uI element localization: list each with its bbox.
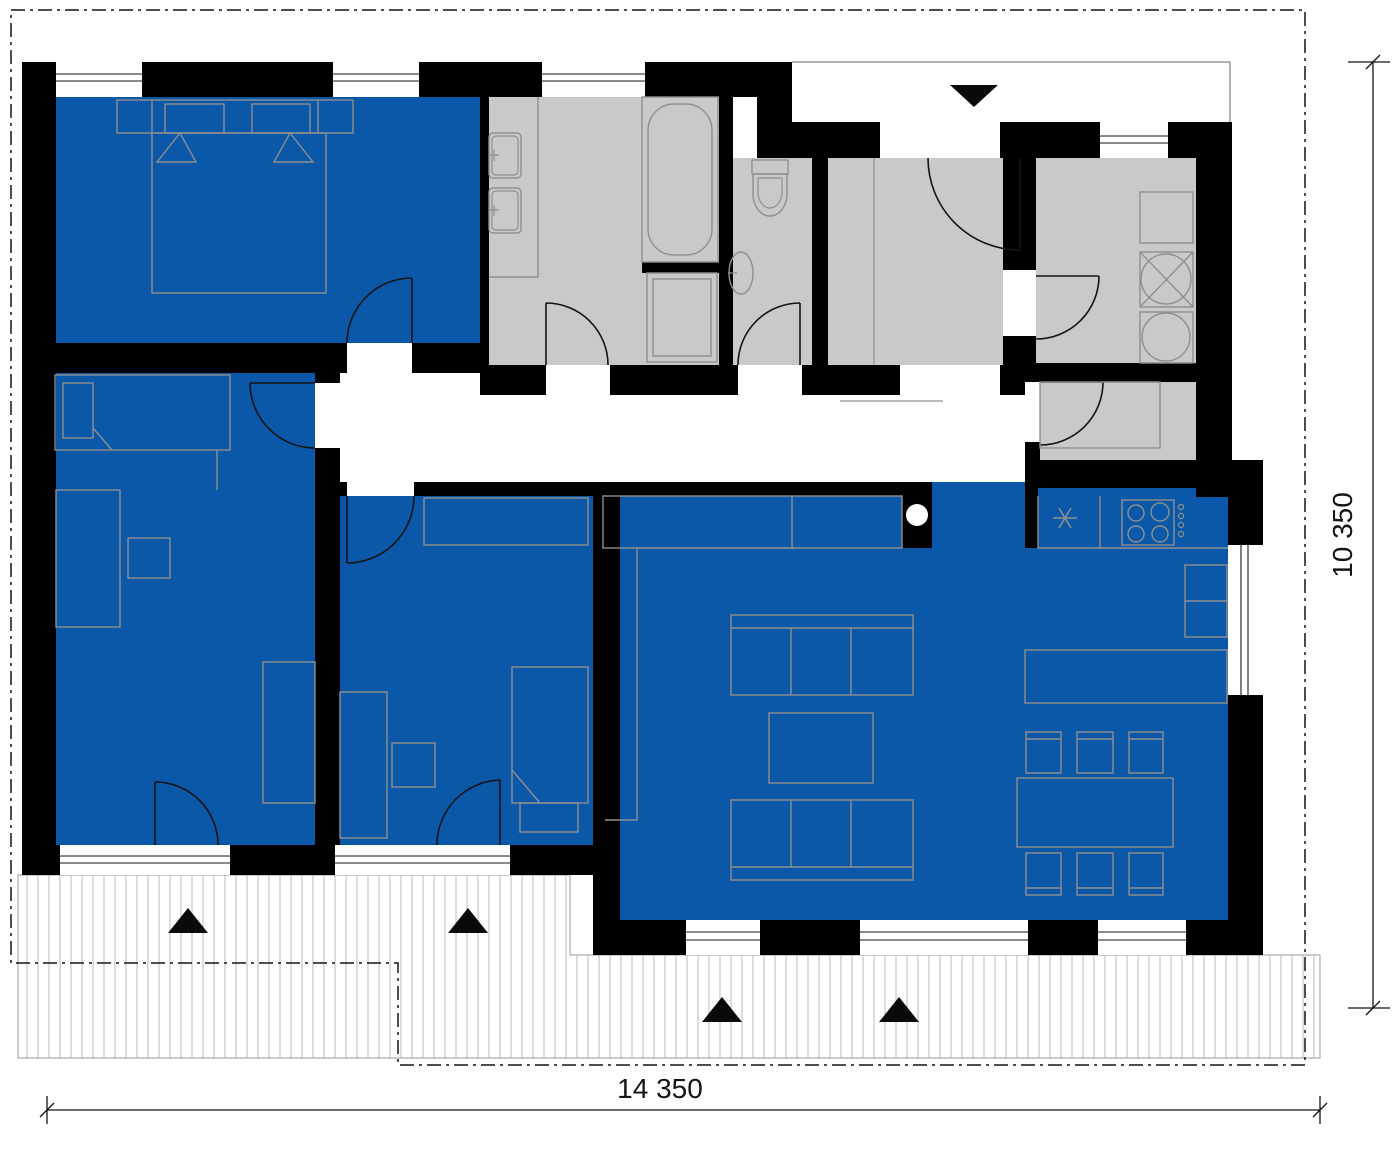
partition-master-bathroom	[480, 97, 489, 365]
living-passage-floor	[932, 482, 1025, 497]
wall-technical-south	[1003, 363, 1196, 382]
bedroom-master-floor	[56, 97, 480, 343]
dimension-bottom: 14 350	[40, 1073, 1327, 1124]
floor-plan-page: 14 350 10 350	[0, 0, 1397, 1160]
window-kitchen-east	[1228, 545, 1263, 695]
terrace-door-living-middle	[860, 920, 1028, 955]
window-bedroom-master-1	[56, 62, 142, 97]
window-door-bedroom-middle	[335, 845, 510, 875]
opening-bathroom-door	[546, 365, 610, 395]
opening-bedroom-left-door	[315, 383, 340, 448]
dimension-height-label: 10 350	[1327, 492, 1358, 578]
bedroom-middle-floor	[340, 496, 593, 845]
wall-stub-kitchen	[1025, 482, 1038, 548]
main-entrance-arrow-icon	[950, 85, 998, 107]
partition-bathroom-wc	[719, 97, 733, 365]
opening-entry-door	[880, 122, 1000, 158]
wall-pantry-left	[1025, 442, 1040, 460]
wall-bathtub-end	[642, 262, 719, 273]
window-living-east	[1098, 920, 1186, 955]
chimney-icon	[906, 504, 928, 526]
living-room-floor	[605, 496, 1228, 920]
window-bathroom	[542, 62, 645, 97]
wall-pantry-south	[1025, 460, 1232, 488]
window-entry	[1100, 122, 1168, 158]
entrance-canopy-outline	[792, 62, 1230, 122]
opening-bedroom-master-door	[347, 343, 412, 373]
opening-wc-door	[738, 365, 802, 395]
terrace-door-living-west	[686, 920, 760, 955]
dimension-width-label: 14 350	[617, 1073, 703, 1104]
opening-technical-door	[1003, 270, 1036, 336]
bathroom-floor	[489, 97, 719, 365]
partition-wc-hall	[812, 158, 828, 365]
opening-bedroom-middle-door	[347, 482, 414, 496]
hall-floor	[828, 158, 1003, 365]
technical-room-floor	[1036, 158, 1196, 363]
opening-pantry-door	[1025, 382, 1040, 442]
wall-porch-step	[757, 62, 792, 158]
floor-plan-drawing: 14 350 10 350	[0, 0, 1397, 1160]
dimension-right: 10 350	[1327, 55, 1390, 1015]
window-door-bedroom-left	[60, 845, 230, 875]
opening-hall-corridor	[900, 365, 1000, 395]
bedroom-left-floor	[56, 373, 315, 845]
window-bedroom-master-2	[333, 62, 419, 97]
wall-right-upper	[1196, 122, 1232, 460]
wall-left-exterior	[22, 62, 56, 875]
